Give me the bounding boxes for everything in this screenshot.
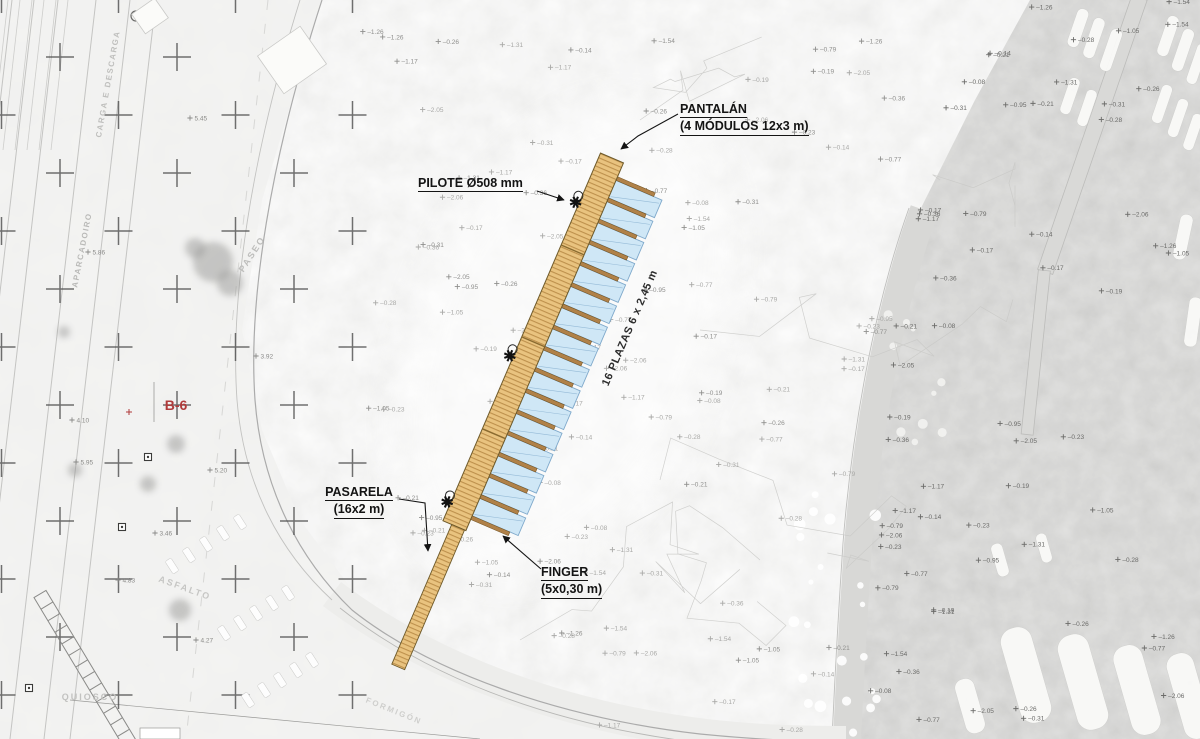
point-value: –0.36	[889, 95, 906, 102]
point-value: –0.26	[1073, 621, 1090, 628]
point-value: –2.05	[898, 362, 915, 369]
point-value: –0.95	[1005, 421, 1022, 428]
point-value: 5.86	[93, 249, 106, 256]
point-value: –1.26	[367, 29, 384, 36]
point-value: –0.79	[610, 651, 627, 658]
moored-dinghy	[842, 696, 851, 705]
point-value: –0.95	[1010, 102, 1027, 109]
point-value: –0.31	[951, 105, 968, 112]
moored-dinghy	[798, 674, 807, 683]
moored-dinghy	[837, 656, 847, 666]
point-value: –0.28	[787, 727, 804, 734]
point-value: –0.23	[885, 544, 902, 551]
point-value: –0.31	[743, 199, 760, 206]
point-value: –0.79	[656, 414, 673, 421]
point-value: –2.06	[611, 366, 628, 373]
point-value: –0.95	[462, 284, 479, 291]
utility-box-dot	[121, 526, 123, 528]
point-value: –0.31	[1109, 101, 1126, 108]
point-value: –0.17	[565, 158, 582, 165]
moored-dinghy	[789, 616, 800, 627]
point-value: –1.26	[1160, 243, 1177, 250]
point-value: –2.05	[547, 233, 564, 240]
point-value: –0.08	[692, 200, 709, 207]
point-value: –0.28	[786, 516, 803, 523]
point-value: 5.20	[215, 467, 228, 474]
moored-dinghy	[860, 653, 868, 661]
point-value: –0.26	[501, 281, 518, 288]
point-value: –1.05	[1097, 507, 1114, 514]
point-value: –0.17	[701, 334, 718, 341]
point-value: –0.26	[768, 420, 785, 427]
moored-dinghy	[849, 729, 857, 737]
point-value: –0.36	[940, 275, 957, 282]
point-value: –0.28	[1078, 37, 1095, 44]
point-value: –0.95	[426, 515, 443, 522]
point-value: –0.28	[380, 300, 397, 307]
point-value: –0.31	[1028, 716, 1045, 723]
moored-dinghy	[937, 378, 945, 386]
point-value: 4.83	[123, 577, 136, 584]
point-value: –1.05	[1123, 28, 1140, 35]
point-value: –0.28	[656, 148, 673, 155]
point-value: –2.05	[427, 107, 444, 114]
point-value: –0.77	[1149, 645, 1166, 652]
point-value: –1.26	[866, 39, 883, 46]
point-value: –1.17	[604, 722, 621, 729]
point-value: –2.06	[1132, 212, 1149, 219]
point-value: –0.79	[887, 523, 904, 530]
point-value: –0.77	[871, 329, 888, 336]
moored-dinghy	[796, 533, 804, 541]
point-value: –1.54	[891, 651, 908, 658]
point-value: –1.26	[387, 34, 404, 41]
tree	[169, 599, 191, 621]
utility-box-dot	[147, 456, 149, 458]
point-value: –0.21	[774, 387, 791, 394]
point-value: –1.26	[1036, 4, 1053, 11]
point-value: –0.36	[903, 669, 920, 676]
point-value: –0.19	[938, 607, 955, 614]
moored-dinghy	[938, 428, 947, 437]
point-value: –0.21	[993, 52, 1010, 59]
point-value: –2.06	[886, 532, 903, 539]
point-value: 5.45	[195, 115, 208, 122]
point-value: –0.23	[388, 407, 405, 414]
point-value: –0.21	[833, 645, 850, 652]
point-value: –1.26	[1158, 634, 1175, 641]
point-value: –0.19	[1013, 483, 1030, 490]
point-value: –0.36	[924, 211, 941, 218]
point-value: –2.06	[1168, 693, 1185, 700]
point-value: –1.31	[1061, 79, 1078, 86]
point-value: –0.26	[651, 108, 668, 115]
point-value: –0.08	[591, 525, 608, 532]
point-value: –0.19	[818, 69, 835, 76]
point-value: –0.14	[575, 47, 592, 54]
point-value: –1.31	[507, 42, 524, 49]
point-value: –0.95	[876, 316, 893, 323]
survey-map: –0.14–0.21–0.26–0.31–0.28–1.05–1.17–0.77…	[0, 0, 1200, 739]
point-value: –0.31	[476, 582, 493, 589]
moored-dinghy	[818, 564, 824, 570]
point-value: –2.06	[630, 358, 647, 365]
point-value: –0.19	[752, 77, 769, 84]
point-value: –0.26	[1020, 706, 1037, 713]
point-value: –0.79	[839, 471, 856, 478]
point-value: –0.19	[706, 390, 723, 397]
point-value: –1.54	[590, 570, 607, 577]
point-value: –1.05	[447, 310, 464, 317]
point-value: –0.19	[894, 414, 911, 421]
plan-canvas: –0.14–0.21–0.26–0.31–0.28–1.05–1.17–0.77…	[0, 0, 1200, 739]
point-value: –0.79	[970, 211, 987, 218]
point-value: 4.10	[77, 417, 90, 424]
point-value: –1.26	[566, 630, 583, 637]
label-box	[140, 728, 180, 739]
point-value: –0.17	[719, 699, 736, 706]
moored-dinghy	[808, 579, 813, 584]
point-value: –0.95	[983, 558, 1000, 565]
point-value: –1.17	[628, 395, 645, 402]
point-value: –0.36	[727, 601, 744, 608]
point-value: –2.05	[978, 708, 995, 715]
point-value: 5.95	[81, 459, 94, 466]
point-value: –0.31	[647, 570, 664, 577]
point-value: –0.95	[649, 287, 666, 294]
point-value: –0.08	[704, 398, 721, 405]
point-value: –1.31	[464, 175, 481, 182]
tree	[185, 238, 205, 258]
point-value: 4.27	[201, 637, 214, 644]
point-value: –0.26	[1143, 86, 1160, 93]
point-value: –0.31	[537, 140, 554, 147]
point-value: –2.05	[854, 70, 871, 77]
moored-dinghy	[872, 695, 880, 703]
point-value: –0.08	[875, 688, 892, 695]
point-value: –1.54	[1174, 0, 1191, 6]
point-value: –0.17	[977, 247, 994, 254]
moored-dinghy	[804, 699, 813, 708]
point-value: –2.05	[1021, 438, 1038, 445]
moored-dinghy	[896, 427, 905, 436]
point-value: –0.79	[761, 297, 778, 304]
point-value: –0.23	[973, 522, 990, 529]
point-value: –2.05	[453, 274, 470, 281]
point-value: –0.23	[799, 130, 816, 137]
point-value: –1.17	[496, 169, 513, 176]
point-value: –0.77	[885, 156, 902, 163]
moored-dinghy	[912, 439, 919, 446]
point-value: –0.19	[481, 346, 498, 353]
point-value: –0.23	[572, 534, 589, 541]
point-value: –0.26	[443, 39, 460, 46]
point-value: –0.14	[1036, 232, 1053, 239]
point-value: –1.05	[743, 658, 760, 665]
point-value: –1.31	[849, 356, 866, 363]
point-value: –0.77	[924, 717, 941, 724]
moored-dinghy	[824, 513, 835, 524]
point-value: –0.17	[1047, 265, 1064, 272]
point-value: –0.21	[429, 528, 446, 535]
point-value: –0.14	[925, 514, 942, 521]
point-value: –0.19	[1106, 288, 1123, 295]
tree	[58, 326, 70, 338]
point-value: –0.31	[723, 462, 740, 469]
point-value: –0.79	[820, 47, 837, 54]
point-value: –0.77	[696, 282, 713, 289]
point-value: –2.06	[752, 117, 769, 124]
point-value: –0.36	[423, 244, 440, 251]
moored-dinghy	[918, 419, 928, 429]
point-value: –0.08	[969, 79, 986, 86]
point-value: –1.17	[402, 59, 419, 66]
point-value: –0.17	[466, 225, 483, 232]
point-value: –1.05	[764, 646, 781, 653]
tree	[140, 476, 156, 492]
moored-dinghy	[812, 491, 819, 498]
point-value: –0.79	[882, 585, 899, 592]
point-value: –0.14	[494, 572, 511, 579]
point-value: –1.54	[715, 636, 732, 643]
point-value: –2.06	[641, 650, 658, 657]
point-value: 3.46	[160, 530, 173, 537]
point-value: –1.31	[617, 547, 634, 554]
moored-dinghy	[857, 582, 864, 589]
point-value: 3.92	[261, 353, 274, 360]
point-value: –0.17	[849, 366, 866, 373]
point-value: –0.28	[684, 434, 701, 441]
point-value: –0.28	[1122, 557, 1139, 564]
moored-dinghy	[809, 507, 818, 516]
point-value: –0.36	[893, 437, 910, 444]
point-value: –1.17	[900, 508, 917, 515]
moored-dinghy	[804, 621, 811, 628]
point-value: –1.54	[1172, 22, 1189, 29]
point-value: –0.23	[1068, 434, 1085, 441]
point-value: –1.54	[611, 626, 628, 633]
point-value: –0.77	[911, 571, 928, 578]
point-value: –0.28	[1106, 117, 1123, 124]
moored-dinghy	[815, 700, 827, 712]
point-value: –1.05	[482, 560, 499, 567]
point-value: –1.17	[555, 65, 572, 72]
point-value: –0.14	[833, 145, 850, 152]
moored-dinghy	[931, 391, 936, 396]
point-value: –0.77	[615, 317, 632, 324]
moored-dinghy	[866, 703, 875, 712]
point-value: –1.31	[1029, 542, 1046, 549]
tree	[217, 270, 243, 296]
tree	[68, 463, 82, 477]
point-value: –0.21	[691, 482, 708, 489]
point-value: –0.21	[1037, 101, 1054, 108]
point-value: –0.14	[576, 434, 593, 441]
tree	[167, 435, 185, 453]
point-value: –1.54	[694, 216, 711, 223]
point-value: –2.06	[447, 195, 464, 202]
point-value: –0.08	[545, 480, 562, 487]
point-value: –0.21	[901, 323, 918, 330]
point-value: –2.06	[545, 559, 562, 566]
moored-dinghy	[860, 602, 865, 607]
point-value: –1.05	[1173, 250, 1190, 257]
point-value: –1.17	[928, 484, 945, 491]
utility-box-dot	[28, 687, 30, 689]
point-value: –1.54	[659, 38, 676, 45]
point-value: –0.14	[818, 671, 835, 678]
point-value: –0.08	[939, 323, 956, 330]
point-value: –0.77	[766, 436, 783, 443]
point-value: –1.05	[689, 225, 706, 232]
